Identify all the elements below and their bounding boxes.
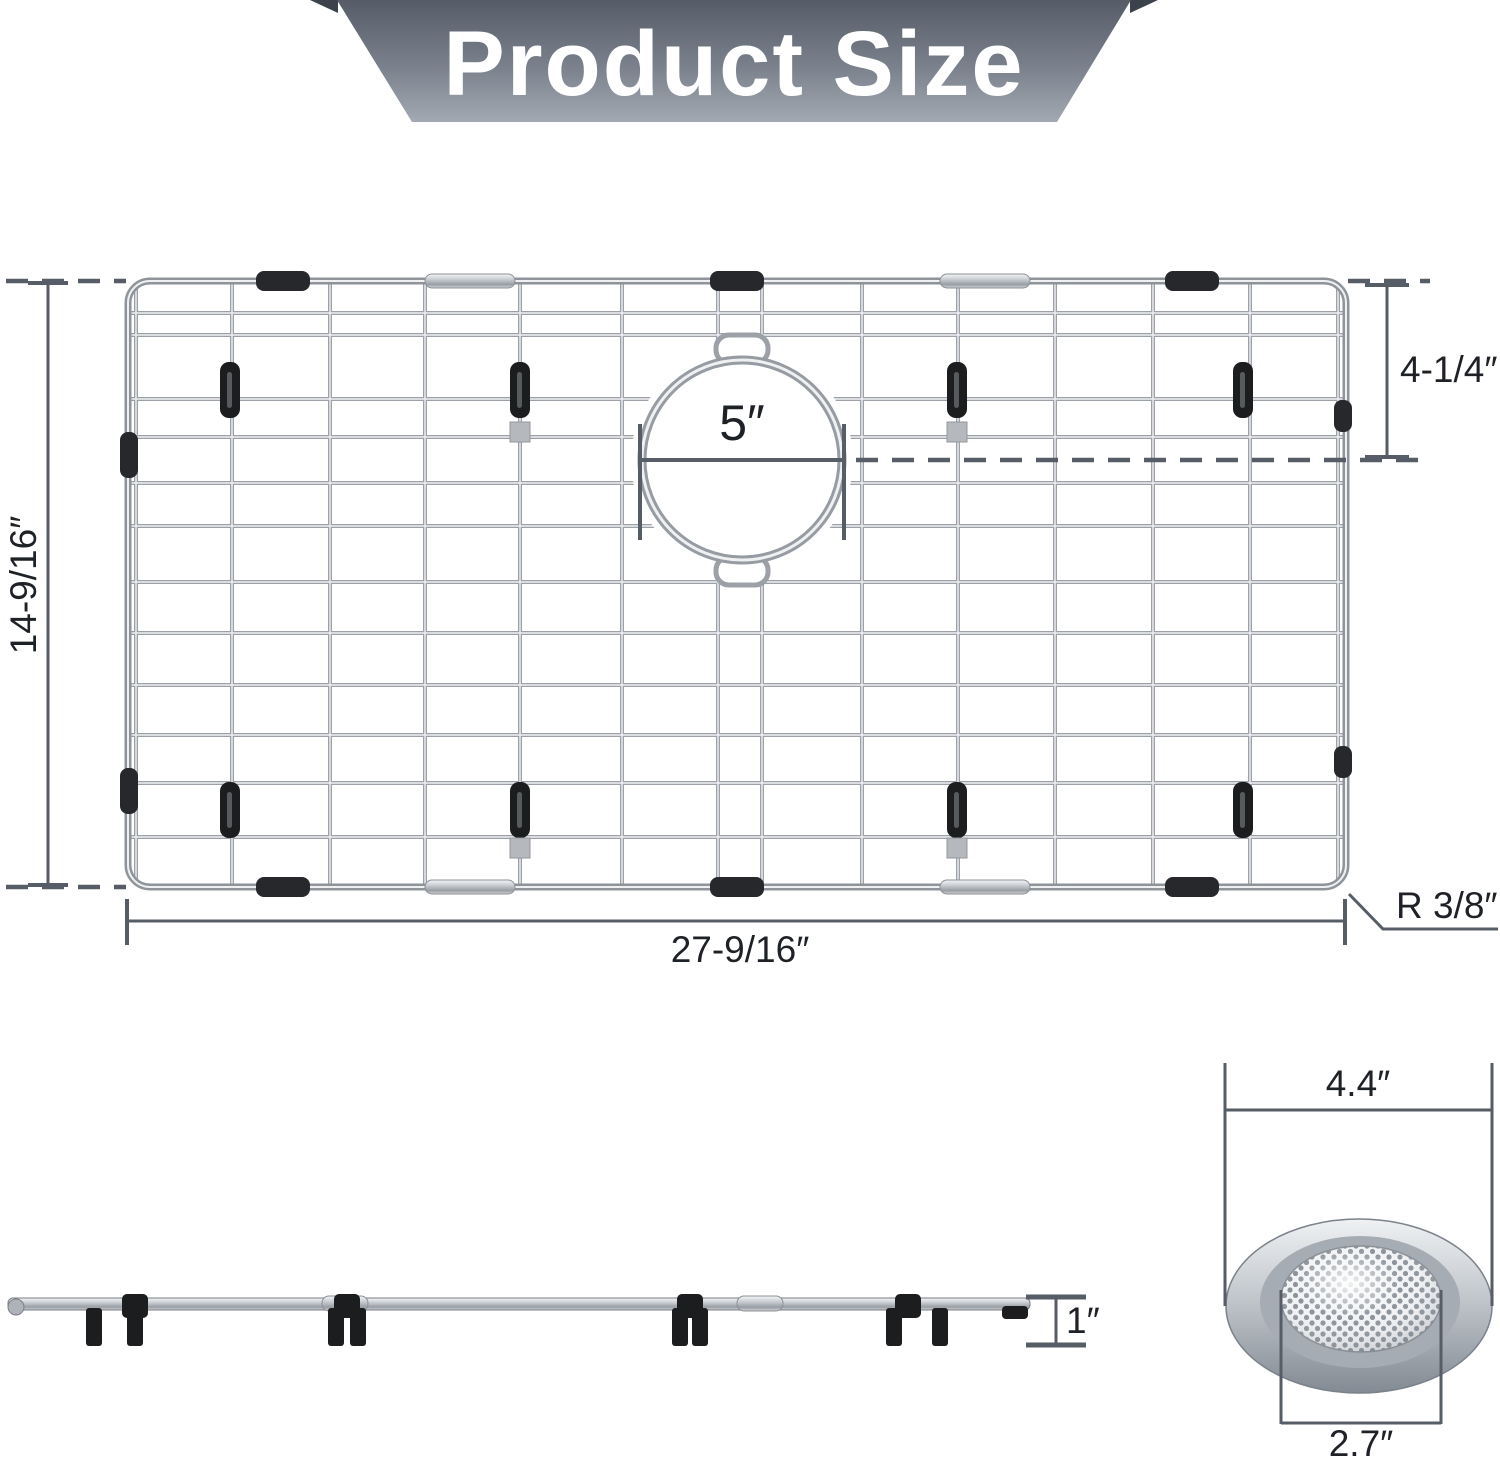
rubber-foot (220, 782, 240, 838)
rubber-foot (1233, 362, 1253, 418)
strainer-outer-label: 4.4″ (1326, 1063, 1391, 1104)
edge-clip-black (1165, 271, 1219, 291)
foot-leg (672, 1308, 688, 1346)
product-size-diagram: Product Size (0, 0, 1500, 1459)
edge-clip-black (1165, 877, 1219, 897)
edge-clip-black (1334, 400, 1352, 432)
rubber-foot (510, 362, 530, 418)
edge-clip-black (710, 271, 764, 291)
edge-clip-black (1334, 746, 1352, 778)
width-dimension-label: 27-9/16″ (671, 929, 810, 970)
side-view-bar (8, 1298, 1030, 1310)
wire-connector-square (947, 422, 967, 442)
wire-connector-square (510, 422, 530, 442)
height-dimension-label: 14-9/16″ (3, 516, 44, 655)
side-view-sleeve (737, 1296, 783, 1311)
rubber-foot (947, 362, 967, 418)
sink-grid-side-view (8, 1294, 1030, 1346)
foot-leg (692, 1308, 708, 1346)
drain-diameter-label: 5″ (719, 395, 765, 451)
foot-leg (886, 1308, 902, 1346)
foot-leg (350, 1308, 366, 1346)
rubber-foot (947, 782, 967, 838)
drain-strainer (1226, 1219, 1492, 1393)
thickness-label: 1″ (1066, 1300, 1100, 1341)
product-size-page: Product Size (0, 0, 1500, 1459)
rubber-foot (1233, 782, 1253, 838)
side-view-feet (86, 1308, 948, 1346)
edge-sleeve-silver (940, 274, 1030, 288)
wire-connector-square (947, 838, 967, 858)
corner-radius-label: R 3/8″ (1396, 885, 1498, 926)
side-view-end-clip (1002, 1306, 1028, 1319)
edge-clip-black (120, 768, 138, 814)
edge-sleeve-silver (425, 880, 515, 894)
edge-clip-black (120, 432, 138, 478)
wire-connector-square (510, 838, 530, 858)
foot-leg (127, 1308, 143, 1346)
strainer-mesh-shine (1281, 1246, 1441, 1352)
edge-clip-black (710, 877, 764, 897)
side-view-bar-end-cap (8, 1299, 24, 1315)
sink-grid-top-view (120, 271, 1352, 897)
foot-leg (328, 1308, 344, 1346)
rubber-foot (510, 782, 530, 838)
edge-clip-black (256, 271, 310, 291)
drain-offset-label: 4-1/4″ (1400, 349, 1497, 390)
edge-clip-black (256, 877, 310, 897)
edge-sleeve-silver (425, 274, 515, 288)
foot-leg (932, 1308, 948, 1346)
header-banner: Product Size (310, 0, 1158, 122)
foot-leg (86, 1308, 102, 1346)
banner-ribbon-fold-right (1130, 0, 1158, 13)
banner-ribbon-fold-left (310, 0, 338, 13)
strainer-inner-label: 2.7″ (1329, 1423, 1394, 1459)
header-title: Product Size (443, 13, 1024, 115)
edge-sleeve-silver (940, 880, 1030, 894)
rubber-foot (220, 362, 240, 418)
